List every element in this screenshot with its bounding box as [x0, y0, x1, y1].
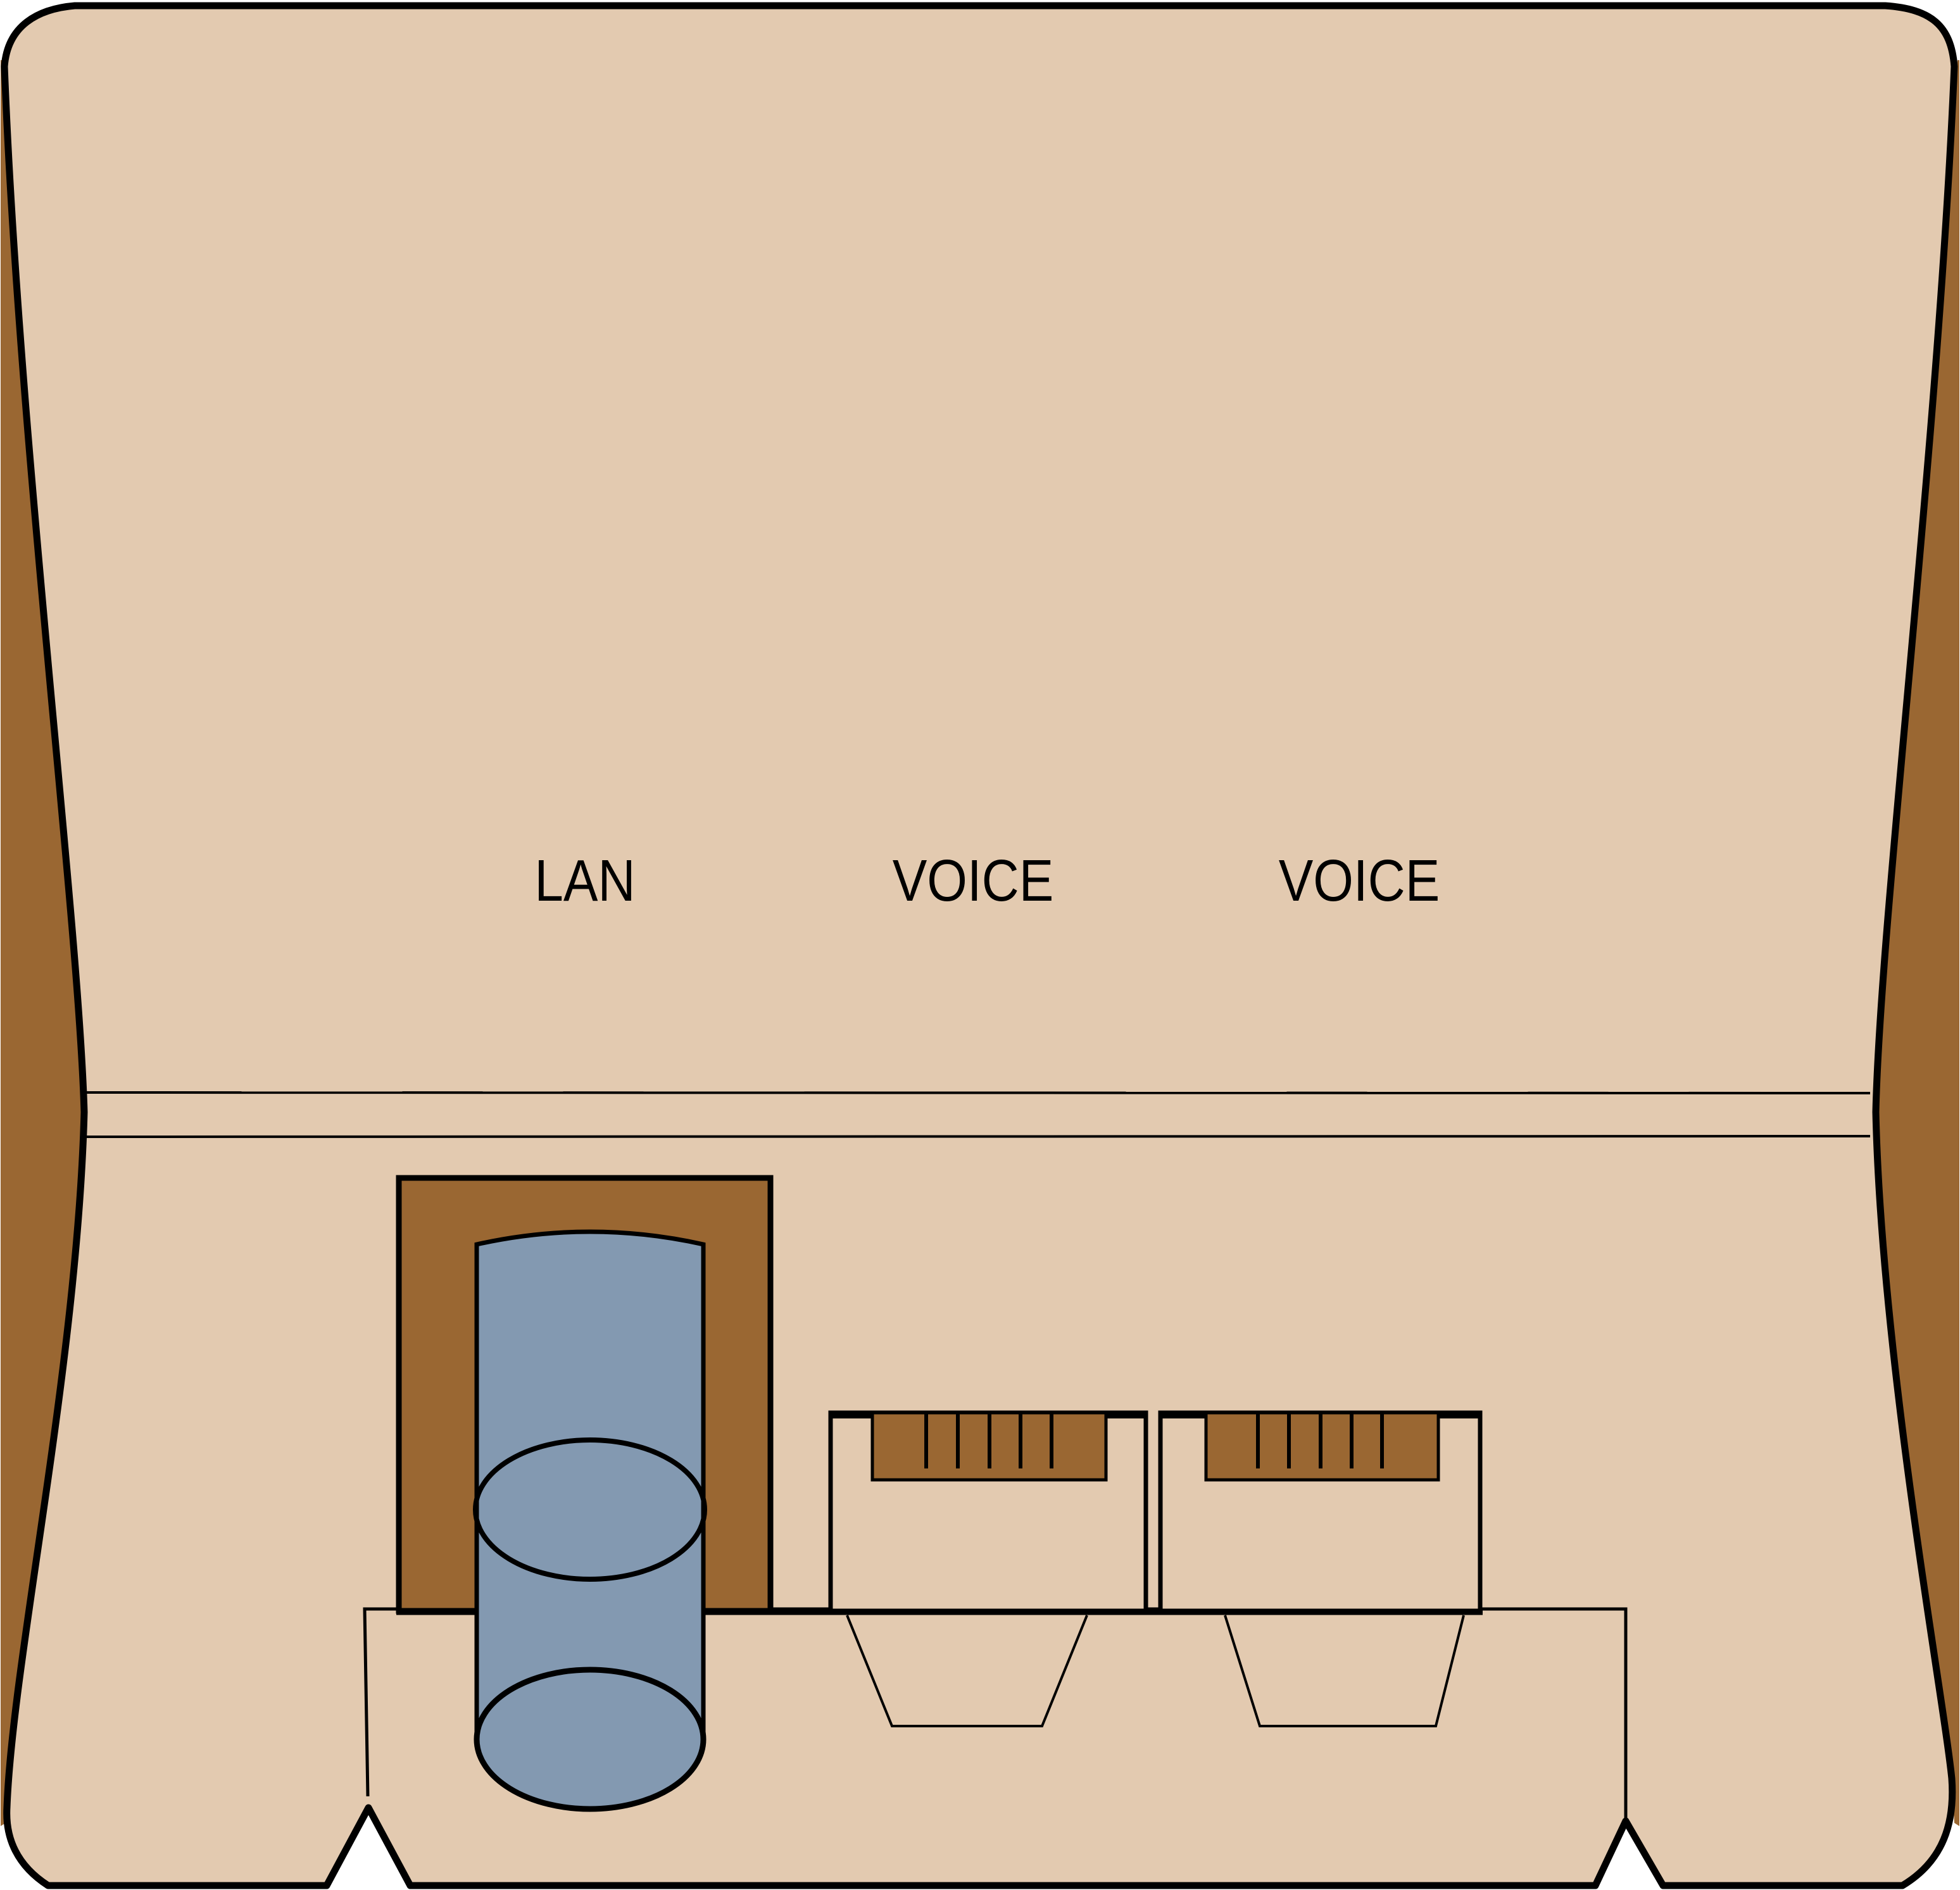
lan-cable-end-cap	[477, 1670, 703, 1809]
lan-label: LAN	[534, 848, 635, 913]
voice-label-2: VOICE	[1279, 848, 1440, 913]
voice-label-1: VOICE	[893, 848, 1054, 913]
lan-cable	[477, 1232, 703, 1739]
fold-line-upper	[84, 1092, 1870, 1093]
fold-line-lower	[84, 1136, 1870, 1137]
wall-plate-diagram: LAN VOICE VOICE	[0, 0, 1960, 1890]
